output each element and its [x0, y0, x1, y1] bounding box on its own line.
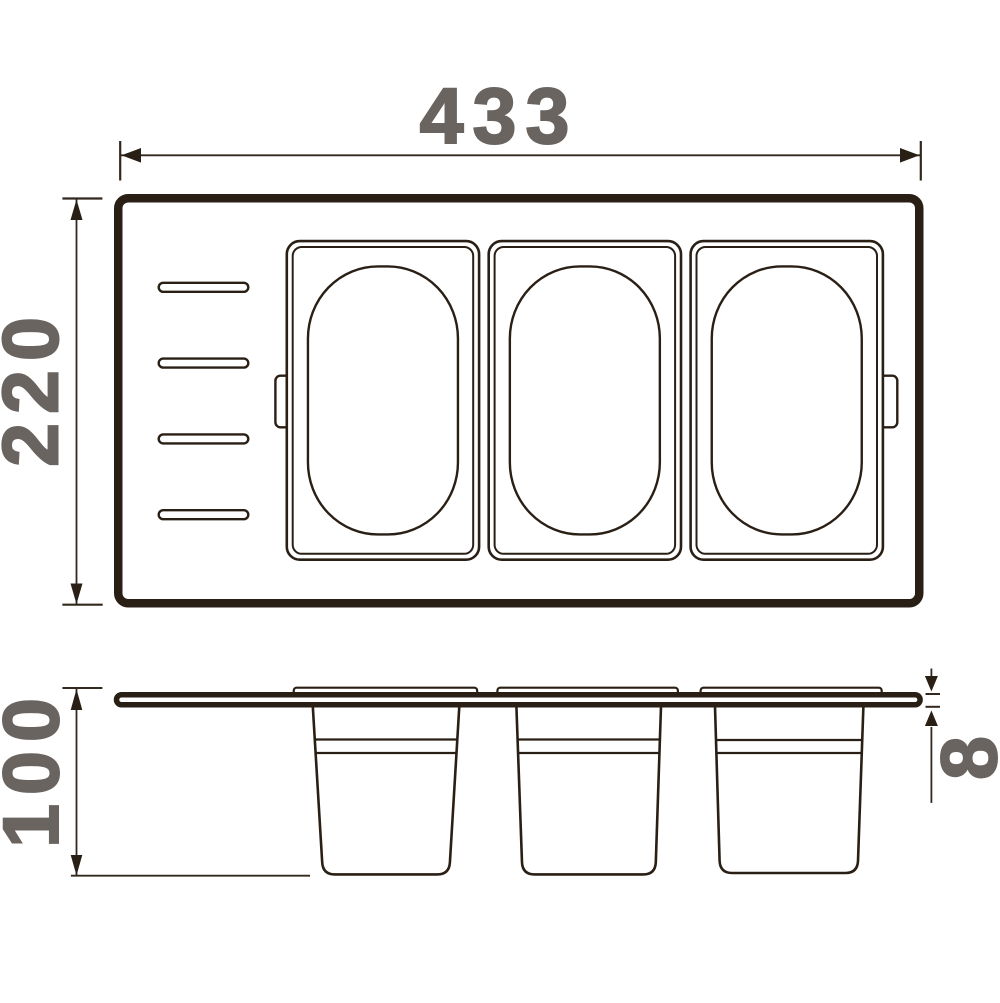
svg-text:8: 8 [924, 736, 1000, 780]
svg-text:100: 100 [0, 689, 75, 848]
svg-text:220: 220 [0, 308, 74, 467]
svg-text:433: 433 [420, 71, 579, 160]
